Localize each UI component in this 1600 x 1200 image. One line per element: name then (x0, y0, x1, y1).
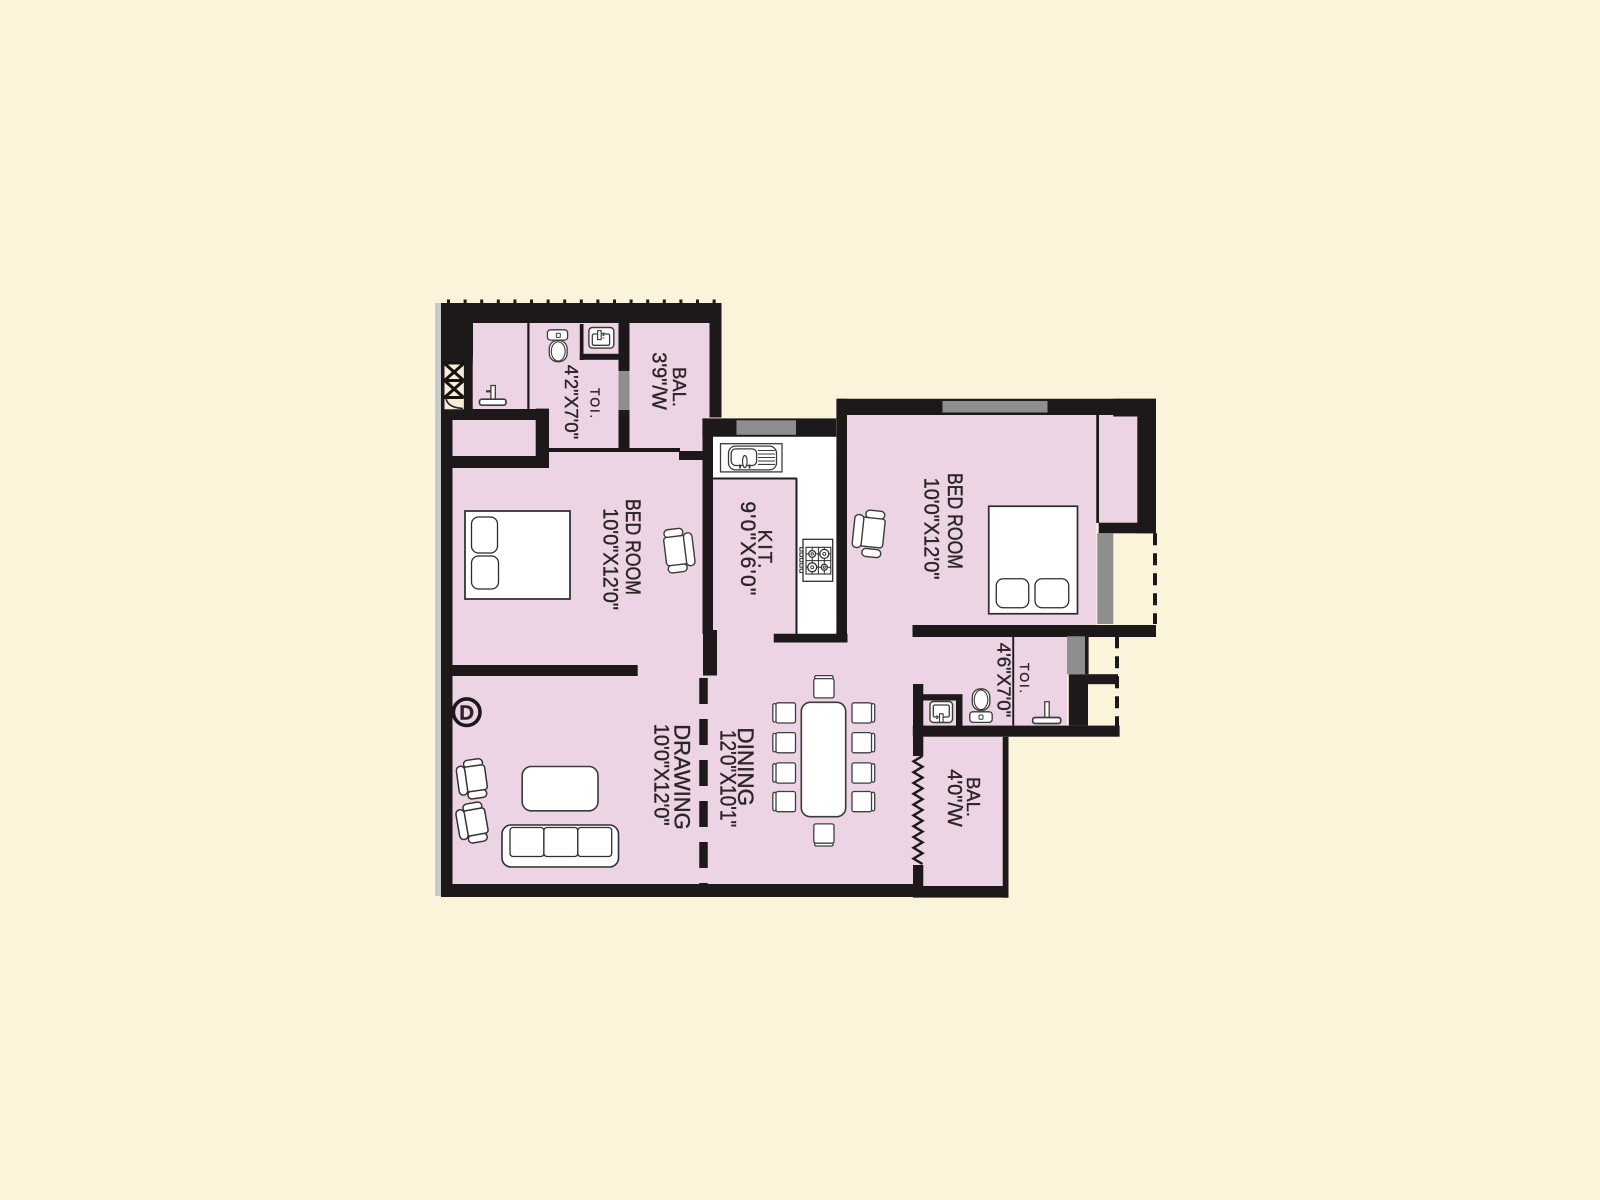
svg-text:D: D (459, 702, 474, 725)
svg-text:TOI.: TOI. (1017, 663, 1031, 695)
svg-text:4'0"/W: 4'0"/W (943, 769, 965, 827)
svg-text:4'2"X7'0": 4'2"X7'0" (561, 365, 582, 439)
svg-text:BED ROOM: BED ROOM (943, 473, 967, 569)
svg-text:BED ROOM: BED ROOM (621, 499, 645, 595)
svg-text:10'0"X12'0": 10'0"X12'0" (598, 508, 622, 610)
svg-text:4'6"X7'0": 4'6"X7'0" (993, 643, 1014, 717)
svg-text:10'0"X12'0": 10'0"X12'0" (649, 724, 673, 826)
svg-text:BAL.: BAL. (963, 777, 984, 817)
svg-text:BAL.: BAL. (669, 367, 690, 407)
svg-text:3'9"/W: 3'9"/W (648, 352, 670, 410)
svg-text:12'0"X10'1": 12'0"X10'1" (715, 730, 740, 827)
svg-text:9'0"X6'0": 9'0"X6'0" (736, 501, 759, 596)
svg-text:TOI.: TOI. (588, 388, 602, 420)
svg-text:10'0"X12'0": 10'0"X12'0" (919, 478, 943, 580)
